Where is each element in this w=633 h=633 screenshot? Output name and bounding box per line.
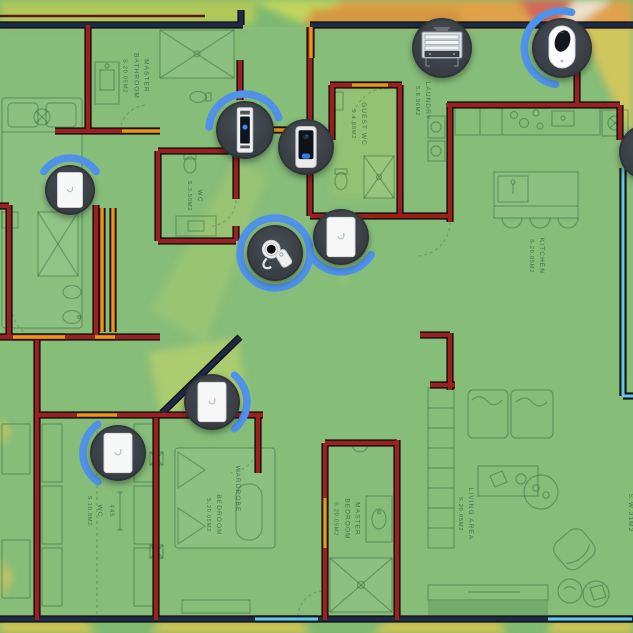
wifi-heatmap-floorplan: MASTER BATHROOM S.20.05m2 WC S.3.50m2 GU…	[0, 0, 633, 633]
floorplan-layer	[0, 0, 633, 633]
device-equipment-rack[interactable]	[397, 3, 487, 93]
doorbell-icon	[278, 119, 334, 175]
rack-icon	[412, 18, 472, 78]
device-doorbell-entry[interactable]	[263, 104, 349, 190]
inwall-ap-icon	[184, 374, 240, 430]
inwall-ap-icon	[313, 209, 369, 265]
device-inwall-ap-bedroom[interactable]	[75, 410, 161, 496]
device-camera-laundry[interactable]	[517, 3, 607, 93]
key-fob-icon	[247, 225, 303, 281]
inwall-ap-icon	[90, 425, 146, 481]
inwall-ap-icon	[45, 165, 95, 215]
device-inwall-ap-master-bath[interactable]	[30, 150, 110, 230]
device-device-right-edge[interactable]	[604, 109, 633, 195]
blank-icon	[619, 124, 633, 180]
device-inwall-ap-hall[interactable]	[298, 194, 384, 280]
device-inwall-ap-corridor[interactable]	[169, 359, 255, 445]
camera-icon	[532, 18, 592, 78]
